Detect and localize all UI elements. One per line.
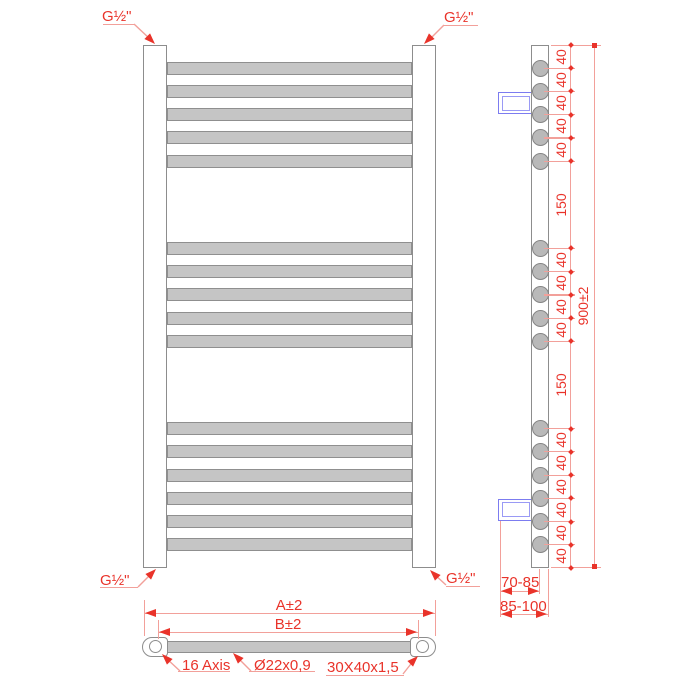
- dim-arrowhead: [536, 610, 547, 618]
- dim-label-40: 40: [554, 252, 568, 268]
- overall-width-dim-label: A±2: [276, 598, 303, 613]
- dim-label-40: 40: [554, 275, 568, 291]
- dim-label-40: 40: [554, 299, 568, 315]
- dim-arrowhead: [159, 628, 170, 636]
- dim-label-40: 40: [554, 479, 568, 495]
- dim-arrowhead: [406, 628, 417, 636]
- connection-label-bottom-right: G½": [446, 571, 476, 586]
- dim-label-40: 40: [554, 525, 568, 541]
- dim-label-40: 40: [554, 95, 568, 111]
- dim-label-40: 40: [554, 72, 568, 88]
- dim-label-40: 40: [554, 432, 568, 448]
- callout-tube-size: Ø22x0,9: [254, 658, 311, 673]
- dim-label-40: 40: [554, 549, 568, 565]
- dim-label-40: 40: [554, 119, 568, 135]
- dim-label-40: 40: [554, 49, 568, 65]
- dim-label-150: 150: [554, 193, 568, 216]
- technical-drawing-canvas: G½" G½" G½" G½" 900±2 70-85 85-100 A±2 B…: [0, 0, 700, 700]
- dim-label-40: 40: [554, 142, 568, 158]
- dim-arrowhead: [145, 609, 156, 617]
- connection-label-top-right: G½": [444, 10, 474, 25]
- dim-label-40: 40: [554, 502, 568, 518]
- callout-profile-size: 30X40x1,5: [327, 660, 399, 675]
- dim-label-40: 40: [554, 456, 568, 472]
- overall-height-dim-label: 900±2: [576, 287, 590, 326]
- leader-lines: [0, 0, 700, 700]
- dim-arrowhead: [528, 587, 539, 595]
- connection-label-top-left: G½": [102, 9, 132, 24]
- dim-label-40: 40: [554, 322, 568, 338]
- callout-axis-count: 16 Axis: [182, 658, 230, 673]
- dim-arrowhead: [501, 610, 512, 618]
- dim-label-150: 150: [554, 373, 568, 396]
- dim-arrowhead: [501, 587, 512, 595]
- axis-width-dim-label: B±2: [275, 617, 302, 632]
- dim-arrowhead: [423, 609, 434, 617]
- connection-label-bottom-left: G½": [100, 573, 130, 588]
